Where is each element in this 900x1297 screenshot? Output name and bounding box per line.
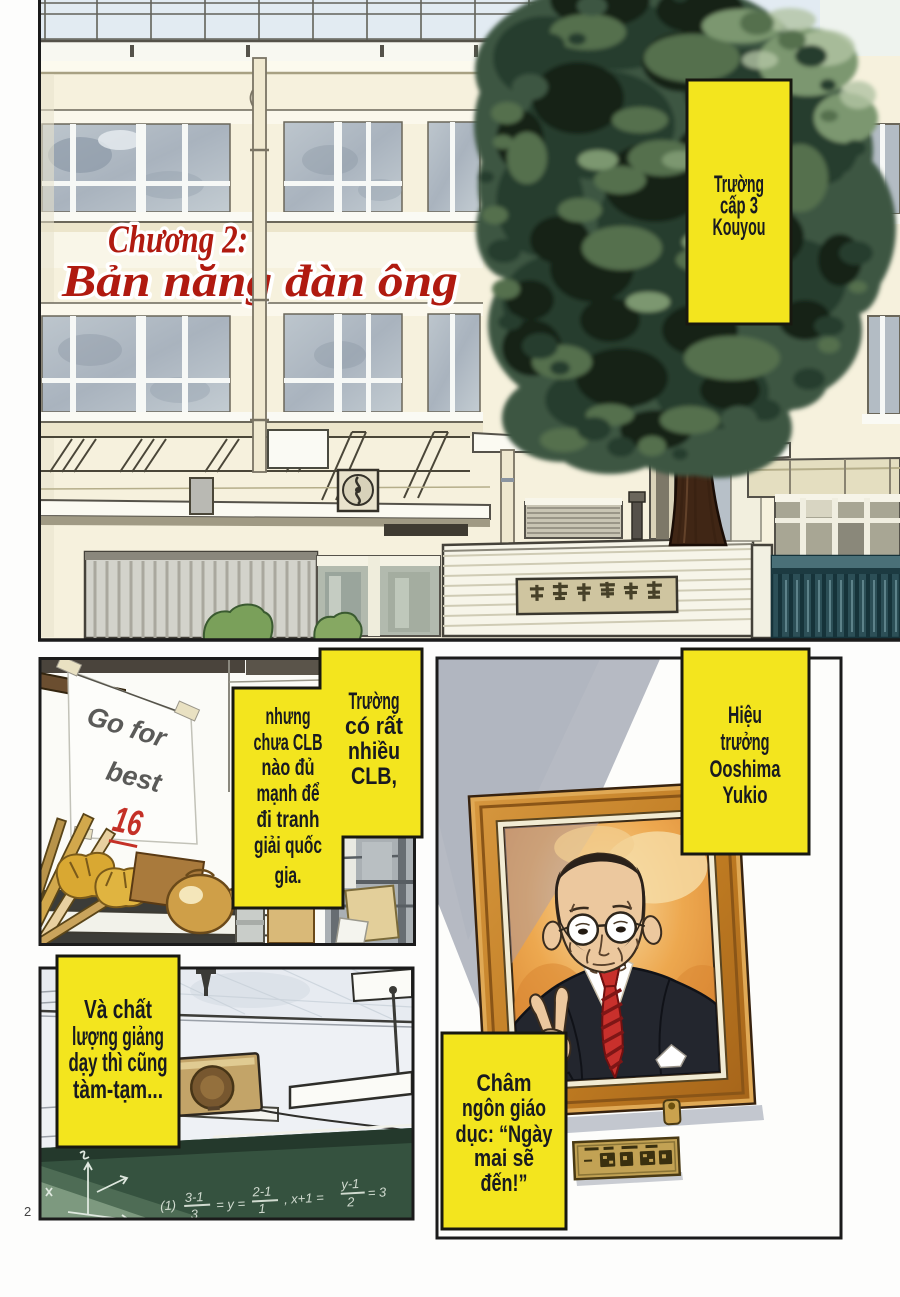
- svg-text:trưởng: trưởng: [721, 729, 770, 756]
- svg-text:dục: “Ngày: dục: “Ngày: [456, 1121, 553, 1148]
- svg-text:nhiều: nhiều: [348, 738, 400, 765]
- svg-text:Châm: Châm: [477, 1070, 532, 1097]
- svg-text:2-1: 2-1: [251, 1183, 272, 1199]
- svg-text:Trường: Trường: [349, 688, 400, 715]
- svg-text:3-1: 3-1: [184, 1189, 204, 1205]
- svg-text:giải quốc: giải quốc: [254, 832, 322, 858]
- svg-text:Và chất: Và chất: [84, 994, 152, 1024]
- svg-text:gia.: gia.: [275, 862, 302, 888]
- svg-text:Ooshima: Ooshima: [710, 756, 781, 783]
- svg-text:Yukio: Yukio: [723, 782, 768, 809]
- svg-text:(1): (1): [160, 1197, 177, 1213]
- svg-text:nào đủ: nào đủ: [262, 754, 315, 780]
- svg-text:2: 2: [24, 1204, 31, 1219]
- svg-text:đến!”: đến!”: [481, 1170, 528, 1197]
- svg-text:Hiệu: Hiệu: [728, 702, 762, 729]
- svg-text:ngôn giáo: ngôn giáo: [462, 1095, 546, 1122]
- svg-text:Kouyou: Kouyou: [713, 214, 766, 241]
- svg-text:y-1: y-1: [340, 1176, 360, 1192]
- svg-text:, x+1 =: , x+1 =: [284, 1190, 325, 1207]
- svg-text:chưa CLB: chưa CLB: [254, 729, 323, 755]
- svg-text:tàm-tạm...: tàm-tạm...: [73, 1074, 163, 1104]
- svg-text:= 3: = 3: [367, 1184, 387, 1200]
- svg-text:nhưng: nhưng: [266, 703, 311, 729]
- svg-text:CLB,: CLB,: [351, 763, 397, 790]
- svg-text:dạy thì cũng: dạy thì cũng: [69, 1047, 168, 1077]
- svg-text:1: 1: [258, 1201, 266, 1216]
- svg-text:đi tranh: đi tranh: [257, 806, 320, 832]
- svg-text:= y =: = y =: [216, 1196, 246, 1213]
- svg-text:2: 2: [346, 1194, 356, 1209]
- svg-text:mạnh để: mạnh để: [257, 780, 320, 806]
- svg-text:có rất: có rất: [345, 713, 403, 740]
- svg-text:mai sẽ: mai sẽ: [474, 1145, 534, 1172]
